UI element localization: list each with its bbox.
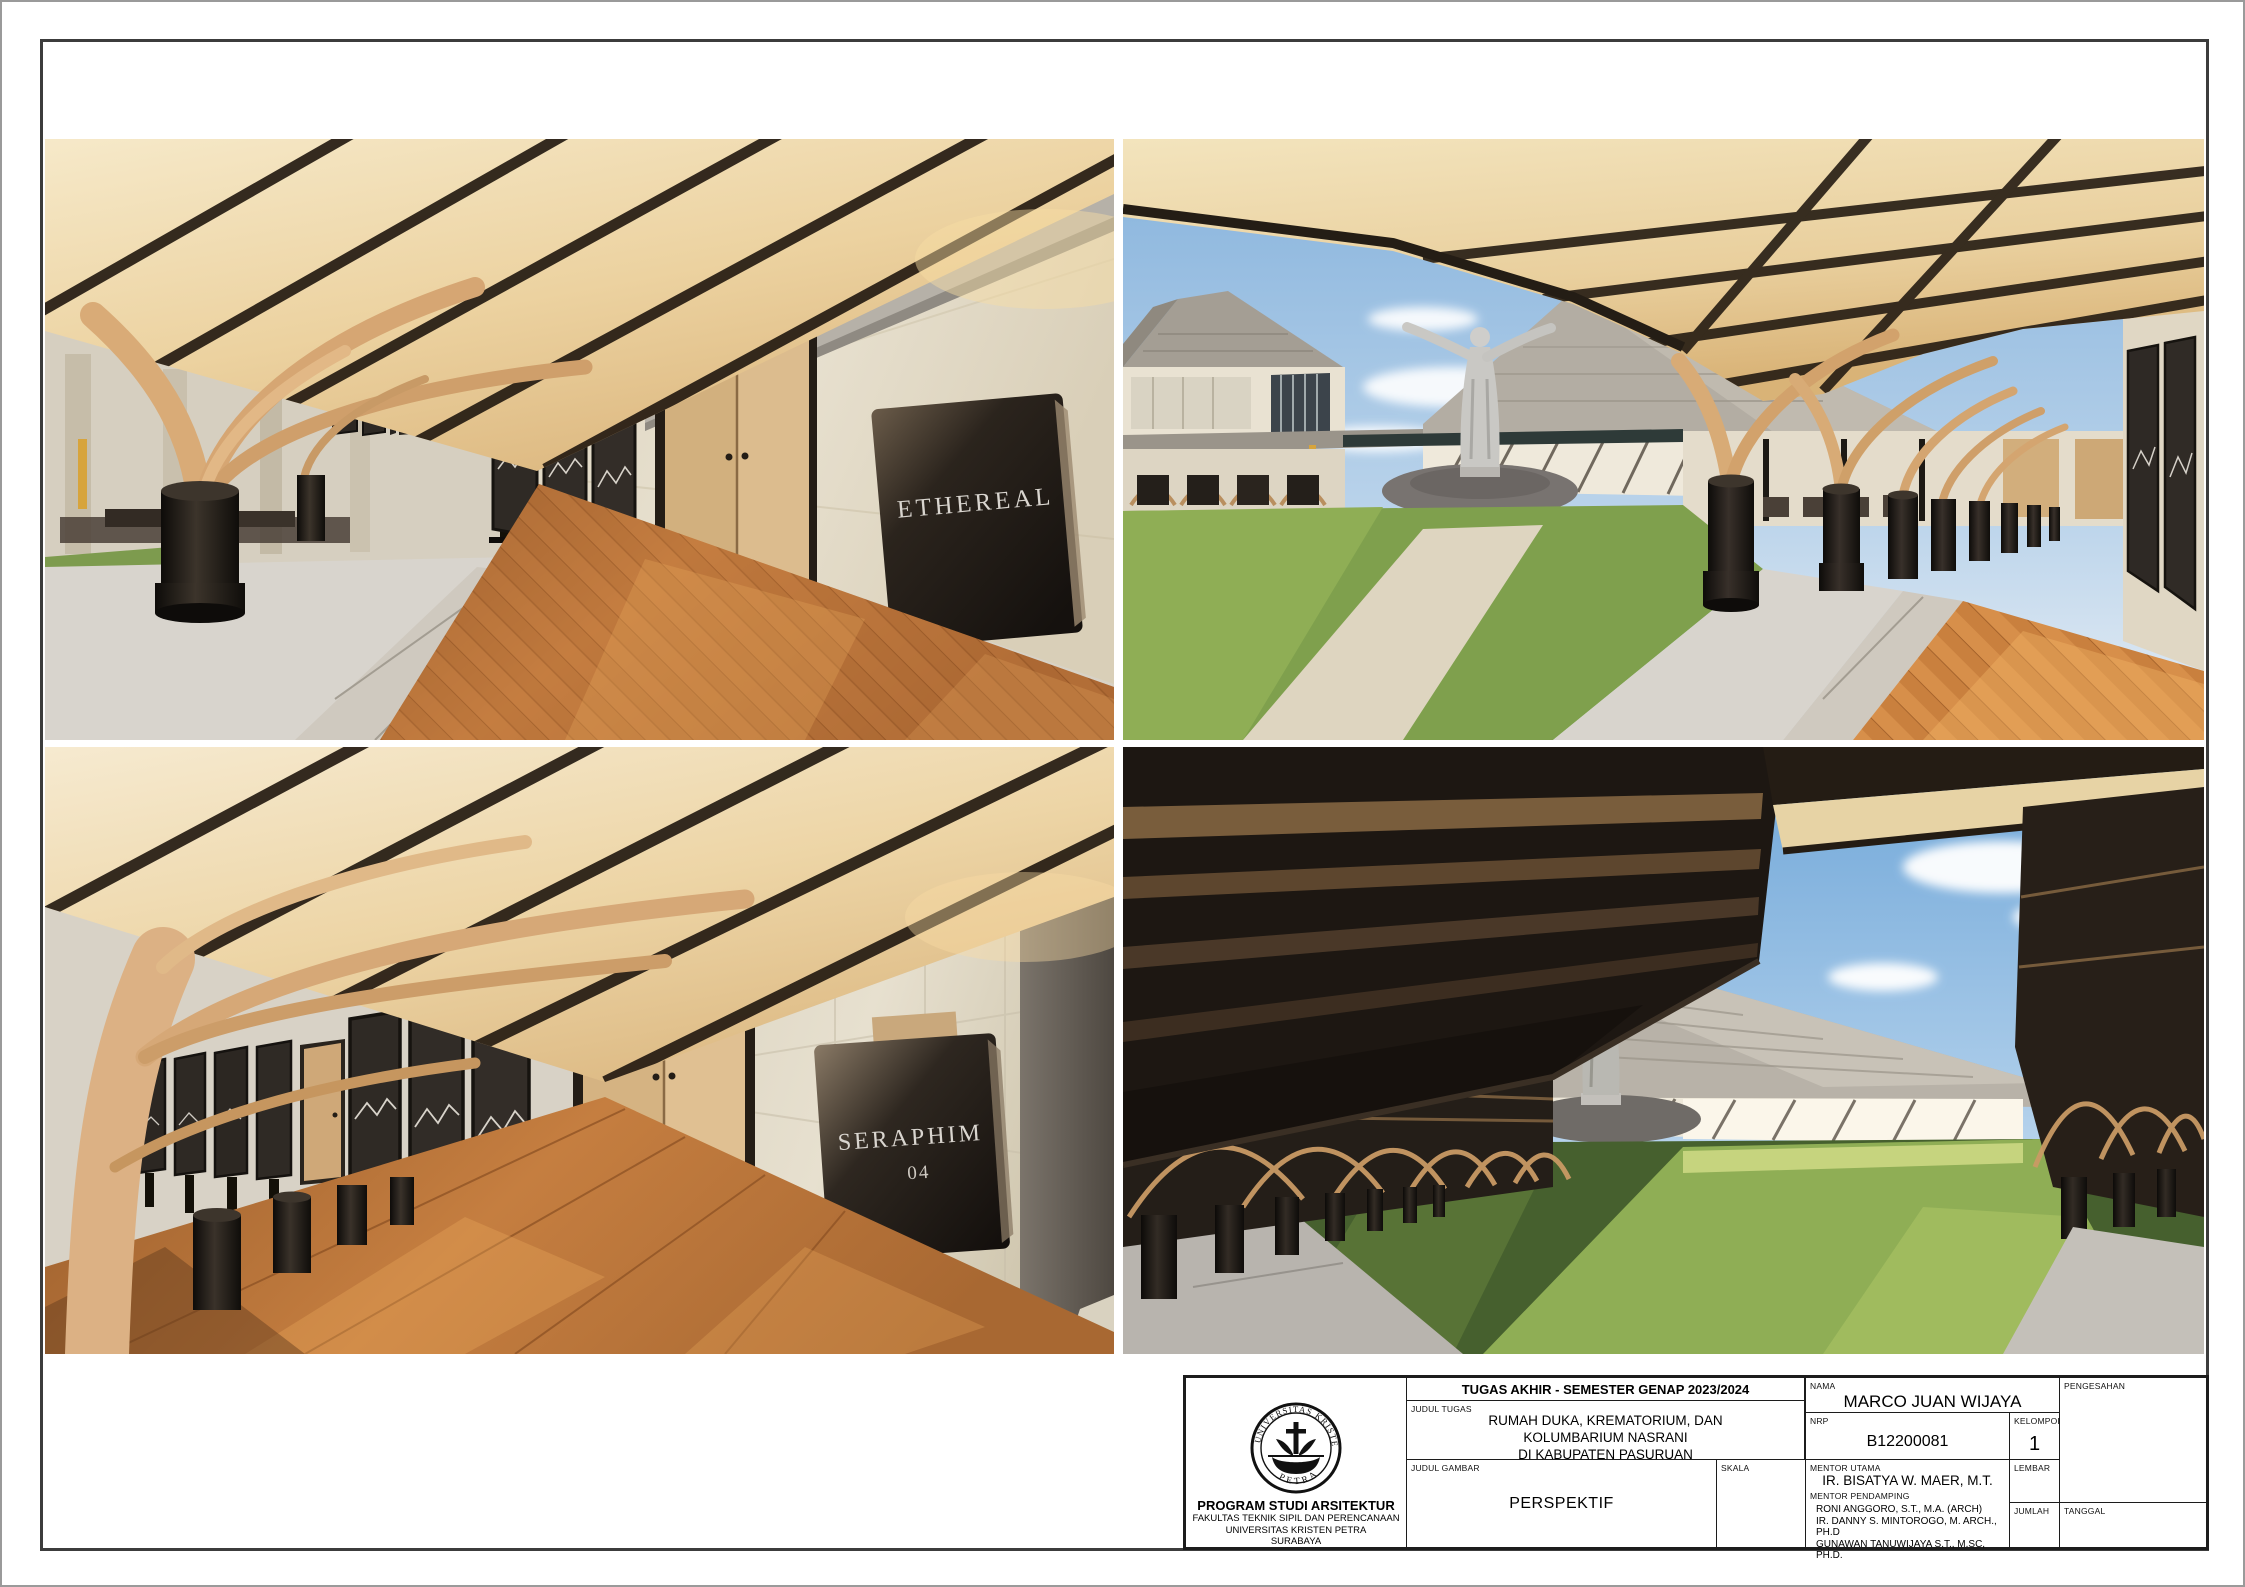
pengesahan-label: PENGESAHAN [2064,1381,2125,1391]
nrp-cell: NRP B12200081 [1805,1412,2010,1460]
tugas-akhir-header-cell: TUGAS AKHIR - SEMESTER GENAP 2023/2024 [1406,1377,1805,1401]
mentor-pendamping-3: GUNAWAN TANUWIJAYA S.T., M.SC, PH.D. [1816,1539,2009,1562]
institution-fakultas: FAKULTAS TEKNIK SIPIL DAN PERENCANAAN [1186,1513,1406,1525]
judul-gambar-value: PERSPEKTIF [1407,1460,1716,1547]
pengesahan-value [2060,1378,2206,1502]
r3-single-door [300,1039,345,1185]
petra-university-logo: UNIVERSITAS KRISTEN PETRA [1250,1402,1342,1494]
nama-cell: NAMA MARCO JUAN WIJAYA [1805,1377,2060,1413]
title-block: UNIVERSITAS KRISTEN PETRA PROGRAM STUDI … [1183,1375,2209,1550]
skala-value [1717,1460,1805,1547]
jumlah-cell: JUMLAH [2009,1502,2060,1548]
presentation-sheet: { "signs": { "ethereal": "ETHEREAL", "se… [0,0,2245,1587]
judul-tugas-line1: RUMAH DUKA, KREMATORIUM, DAN [1407,1412,1804,1429]
seraphim-sign-number: 04 [907,1162,931,1185]
render-top-left-corridor: ETHEREAL [45,139,1114,740]
judul-gambar-cell: JUDUL GAMBAR PERSPEKTIF [1406,1459,1717,1548]
mentor-utama-value: IR. BISATYA W. MAER, M.T. [1806,1473,2009,1488]
lembar-label: LEMBAR [2014,1463,2050,1473]
kelompok-label: KELOMPOK [2014,1416,2063,1426]
skala-label: SKALA [1721,1463,1749,1473]
lembar-cell: LEMBAR [2009,1459,2060,1503]
nrp-value: B12200081 [1806,1413,2009,1465]
judul-tugas-cell: JUDUL TUGAS RUMAH DUKA, KREMATORIUM, DAN… [1406,1400,1805,1460]
skala-cell: SKALA [1716,1459,1806,1548]
institution-program: PROGRAM STUDI ARSITEKTUR [1186,1498,1406,1513]
pengesahan-cell: PENGESAHAN [2059,1377,2207,1503]
institution-cell: UNIVERSITAS KRISTEN PETRA PROGRAM STUDI … [1185,1377,1407,1548]
nrp-label: NRP [1810,1416,1829,1426]
nama-label: NAMA [1810,1381,1835,1391]
render-top-right-courtyard [1123,139,2204,740]
institution-kota: SURABAYA [1186,1536,1406,1548]
tanggal-label: TANGGAL [2064,1506,2105,1516]
render-bottom-right-image [1123,747,2204,1354]
judul-tugas-label: JUDUL TUGAS [1411,1404,1472,1414]
kelompok-cell: KELOMPOK 1 [2009,1412,2060,1460]
ethereal-sign: ETHEREAL [871,393,1087,649]
judul-gambar-label: JUDUL GAMBAR [1411,1463,1480,1473]
jumlah-label: JUMLAH [2014,1506,2049,1516]
render-bottom-left-corridor: SERAPHIM 04 [45,747,1114,1354]
r2-right-wall-panels [2123,301,2204,671]
render-top-left-image: ETHEREAL [45,139,1114,740]
mentor-pendamping-1: RONI ANGGORO, S.T., M.A. (ARCH) [1816,1504,2009,1516]
render-bottom-right-courtyard [1123,747,2204,1354]
tugas-akhir-header: TUGAS AKHIR - SEMESTER GENAP 2023/2024 [1407,1378,1804,1400]
render-top-right-image [1123,139,2204,740]
mentor-pendamping-label: MENTOR PENDAMPING [1810,1491,2009,1501]
render-bottom-left-image: SERAPHIM 04 [45,747,1114,1354]
mentor-cell: MENTOR UTAMA IR. BISATYA W. MAER, M.T. M… [1805,1459,2010,1548]
tanggal-cell: TANGGAL [2059,1502,2207,1548]
judul-tugas-line2: KOLUMBARIUM NASRANI [1407,1429,1804,1446]
mentor-pendamping-2: IR. DANNY S. MINTOROGO, M. ARCH., PH.D [1816,1516,2009,1539]
institution-universitas: UNIVERSITAS KRISTEN PETRA [1186,1525,1406,1537]
mentor-utama-label: MENTOR UTAMA [1810,1463,1881,1473]
